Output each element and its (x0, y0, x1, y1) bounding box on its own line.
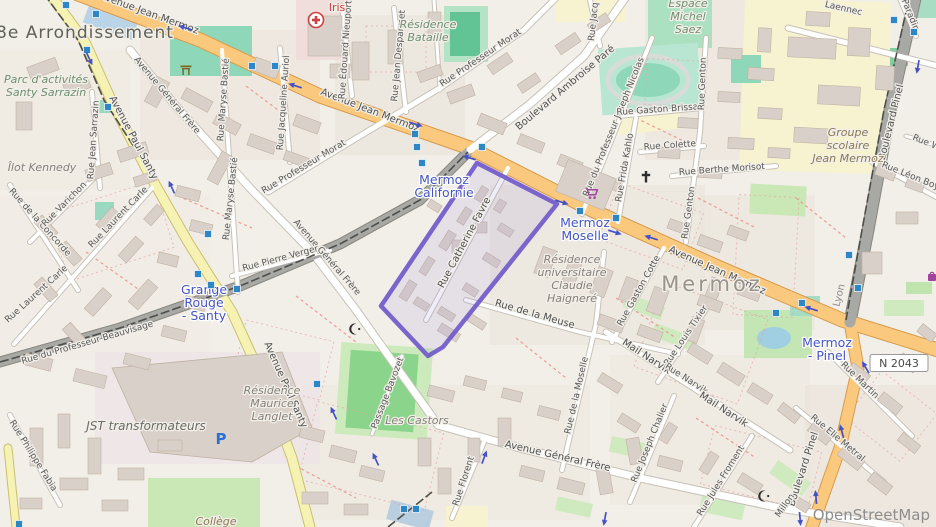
building (718, 47, 743, 59)
attribution-link[interactable]: OpenStreetMap (813, 506, 930, 524)
transit-stop-marker (249, 63, 256, 70)
park-feature (757, 327, 791, 349)
building (88, 438, 101, 474)
transit-stop-marker (891, 17, 898, 24)
building (768, 147, 790, 158)
building (818, 85, 861, 106)
label-district-8e-arrondissement: 8e Arrondissement (0, 23, 174, 43)
transit-stop-marker (208, 282, 215, 289)
transit-stop-marker (419, 160, 426, 167)
badge-layer: N 2043 (870, 355, 928, 372)
svg-text:P: P (216, 430, 227, 448)
building (20, 498, 42, 509)
label-stop-mermoz-californie: MermozCalifornie (414, 172, 474, 200)
building (748, 67, 775, 80)
building (757, 28, 771, 53)
transit-stop-marker (105, 104, 112, 111)
transit-stop-marker (314, 381, 321, 388)
transit-stop-marker (401, 506, 408, 513)
building (862, 252, 882, 274)
transit-stop-marker (577, 208, 584, 215)
landuse-area (906, 282, 932, 294)
road-ref-text: N 2043 (879, 357, 919, 370)
building (58, 414, 70, 448)
transit-stop-marker (479, 144, 486, 151)
label-stop-mermoz-pinel: Mermoz- Pinel (802, 335, 852, 363)
church-cross-icon (642, 171, 650, 183)
parking-icon: P (216, 430, 227, 448)
building (16, 102, 32, 130)
transit-stop-marker (412, 131, 419, 138)
building (302, 492, 328, 504)
building (102, 500, 128, 511)
building (896, 212, 918, 224)
building (352, 42, 369, 80)
building (788, 37, 837, 59)
label-les-castors: Les Castors (385, 414, 449, 427)
building (758, 107, 783, 119)
transit-stop-marker (773, 310, 780, 317)
building (418, 438, 431, 466)
label-lyon: Lyon (831, 283, 847, 308)
building (794, 127, 829, 144)
label-district-mermoz: Mermoz (661, 272, 763, 296)
transit-stop-marker (414, 144, 421, 151)
map-canvas: Avenue Jean MermozAvenue Jean MermozAven… (0, 0, 936, 527)
building (728, 137, 755, 149)
label-stop-grange-rouge-santy: GrangeRouge- Santy (181, 282, 227, 323)
label-iris: Iris (329, 1, 346, 14)
transit-stop-marker (205, 231, 212, 238)
label-parc-santy-sarrazin: Parc d'activitésSanty Sarrazin (4, 73, 88, 99)
landuse-area (884, 300, 924, 316)
road-road-south-stub (8, 448, 16, 527)
building (60, 478, 88, 490)
transit-stop-marker (613, 215, 620, 222)
transit-stop-marker (846, 252, 853, 259)
transit-stop-marker (799, 300, 806, 307)
shop-bag-icon (928, 272, 936, 281)
label-jst-transformateurs: JST transformateurs (84, 419, 206, 433)
building (438, 468, 451, 494)
label-college: Collège (195, 515, 236, 527)
building (517, 73, 541, 94)
oneway-arrow-icon (166, 180, 177, 195)
building (555, 32, 581, 55)
transit-stop-marker (272, 63, 279, 70)
transit-stop-marker (413, 506, 420, 513)
transit-stop-marker (195, 271, 202, 278)
building (847, 27, 870, 56)
building (875, 66, 894, 91)
transit-stop-marker (16, 521, 23, 527)
mosque-crescent-icon (349, 324, 360, 335)
building (718, 91, 740, 102)
transit-stop-marker (855, 285, 862, 292)
building (344, 504, 368, 515)
transit-stop-marker (911, 29, 918, 36)
label-residence-maurice-langlet: RésidenceMauriceLanglet (244, 384, 301, 423)
building (678, 117, 698, 128)
building (517, 134, 545, 154)
label-residence-bataille: RésidenceBataille (400, 18, 457, 44)
transit-stop-marker (63, 2, 70, 9)
building (427, 199, 442, 213)
hospital-cross-icon (309, 13, 324, 28)
building (806, 11, 831, 26)
building (118, 468, 144, 480)
building (158, 440, 182, 451)
transit-stop-marker (93, 11, 100, 18)
label-rue-wilhelm: Rue Wilhelm (911, 133, 936, 163)
label-stop-mermoz-moselle: MermozMoselle (560, 215, 610, 243)
transit-stop-marker (234, 286, 241, 293)
label-ilot-kennedy: Îlot Kennedy (8, 161, 77, 174)
label-rue-genton-a: Rue Genton (697, 57, 709, 110)
oneway-arrow-icon (601, 512, 609, 527)
map-viewport[interactable]: Avenue Jean MermozAvenue Jean MermozAven… (0, 0, 936, 527)
